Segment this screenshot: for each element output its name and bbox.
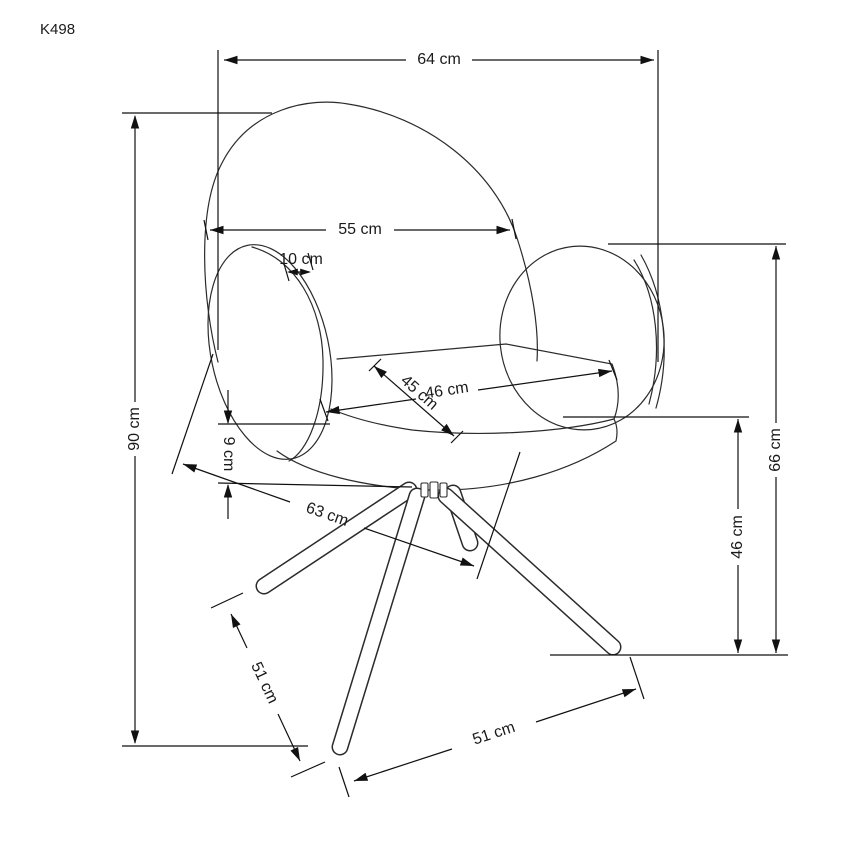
right-armrest-outline <box>491 238 673 438</box>
arrowhead <box>131 731 139 745</box>
dim-overall-height-label: 90 cm <box>126 407 143 451</box>
dim-base-depth-label: 63 cm <box>304 499 351 530</box>
arrowhead <box>622 685 637 697</box>
arrowhead <box>460 558 476 570</box>
dim-leg-length-label: 51 cm <box>247 660 281 707</box>
dim-base-width-label: 51 cm <box>471 719 518 749</box>
right-armrest-rim-outer <box>641 255 664 408</box>
dim-overall-width: 64 cm <box>218 50 658 362</box>
arrowhead <box>772 246 780 260</box>
legs <box>264 490 613 747</box>
technical-drawing-page: K498 <box>0 0 868 868</box>
arrowhead <box>641 56 655 64</box>
arrowhead <box>772 640 780 654</box>
arrowhead <box>287 269 298 276</box>
dim-backrest-width: 55 cm <box>204 219 516 240</box>
dim-cushion-thickness-label: 9 cm <box>220 437 237 472</box>
left-armrest-outline <box>190 233 351 471</box>
dim-backrest-width-label: 55 cm <box>338 221 382 238</box>
arrowhead <box>210 226 224 234</box>
arrowhead <box>224 411 232 425</box>
arrowhead <box>353 773 368 785</box>
arrowhead <box>497 226 511 234</box>
seat-outline <box>331 344 618 433</box>
dim-armrest-thickness-label: 10 cm <box>279 251 323 268</box>
leg-front-right-fill <box>446 496 613 647</box>
arrowhead <box>300 269 311 276</box>
dim-base-width: 51 cm <box>339 657 644 797</box>
left-armrest-rim <box>252 247 323 461</box>
arrowhead <box>224 56 238 64</box>
arrowhead <box>734 419 742 433</box>
arrowhead <box>227 612 240 628</box>
arrowhead <box>182 460 198 472</box>
dim-leg-length: 51 cm <box>211 593 325 777</box>
dim-seat-width: 46 cm <box>320 360 617 421</box>
dim-armrest-height-label: 66 cm <box>767 428 784 472</box>
arrowhead <box>598 367 613 377</box>
swivel-hub <box>421 482 447 498</box>
dim-seat-height-label: 46 cm <box>729 515 746 559</box>
dim-overall-height: 90 cm <box>122 113 308 746</box>
chair-dimension-drawing: K498 <box>0 0 868 868</box>
arrowhead <box>131 115 139 129</box>
model-label: K498 <box>40 21 75 38</box>
arrowhead <box>290 747 303 763</box>
arrowhead <box>734 640 742 654</box>
dim-overall-width-label: 64 cm <box>417 51 461 68</box>
dim-armrest-height: 66 cm <box>550 244 788 655</box>
arrowhead <box>224 484 232 498</box>
